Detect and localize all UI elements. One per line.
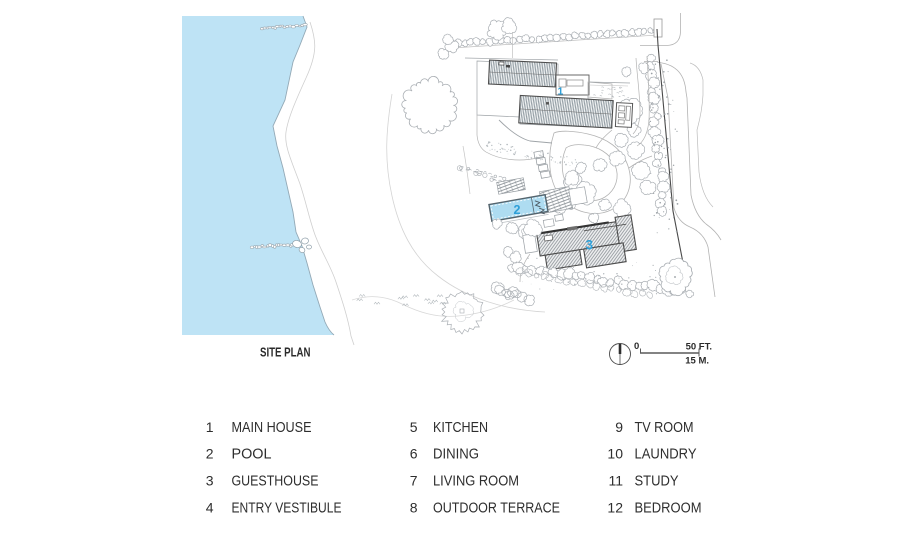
svg-text:2: 2 [514, 203, 521, 217]
svg-text:3: 3 [586, 238, 594, 253]
svg-text:50 FT.: 50 FT. [686, 342, 712, 353]
svg-text:DINING: DINING [433, 447, 479, 463]
svg-text:6: 6 [410, 446, 418, 462]
svg-text:MAIN HOUSE: MAIN HOUSE [232, 420, 312, 436]
svg-text:OUTDOOR TERRACE: OUTDOOR TERRACE [433, 500, 560, 516]
svg-text:GUESTHOUSE: GUESTHOUSE [232, 474, 319, 490]
svg-text:3: 3 [206, 473, 214, 489]
svg-text:15 M.: 15 M. [685, 356, 709, 367]
svg-text:ENTRY VESTIBULE: ENTRY VESTIBULE [232, 500, 342, 516]
svg-text:POOL: POOL [232, 447, 272, 463]
svg-text:9: 9 [615, 419, 623, 435]
svg-text:1: 1 [206, 419, 214, 435]
svg-text:1: 1 [558, 86, 564, 98]
svg-text:LIVING ROOM: LIVING ROOM [433, 474, 519, 490]
svg-text:7: 7 [410, 473, 418, 489]
svg-text:STUDY: STUDY [635, 474, 679, 490]
svg-text:LAUNDRY: LAUNDRY [635, 447, 697, 463]
svg-text:4: 4 [206, 499, 214, 515]
svg-text:10: 10 [607, 446, 623, 462]
svg-text:BEDROOM: BEDROOM [635, 500, 702, 516]
svg-text:KITCHEN: KITCHEN [433, 420, 488, 436]
svg-text:5: 5 [410, 419, 418, 435]
svg-text:2: 2 [206, 446, 214, 462]
svg-text:SITE PLAN: SITE PLAN [260, 345, 311, 359]
svg-text:TV ROOM: TV ROOM [635, 420, 694, 436]
svg-text:0: 0 [634, 341, 639, 352]
svg-text:8: 8 [410, 499, 418, 515]
svg-text:11: 11 [608, 473, 623, 489]
svg-text:12: 12 [607, 499, 623, 515]
